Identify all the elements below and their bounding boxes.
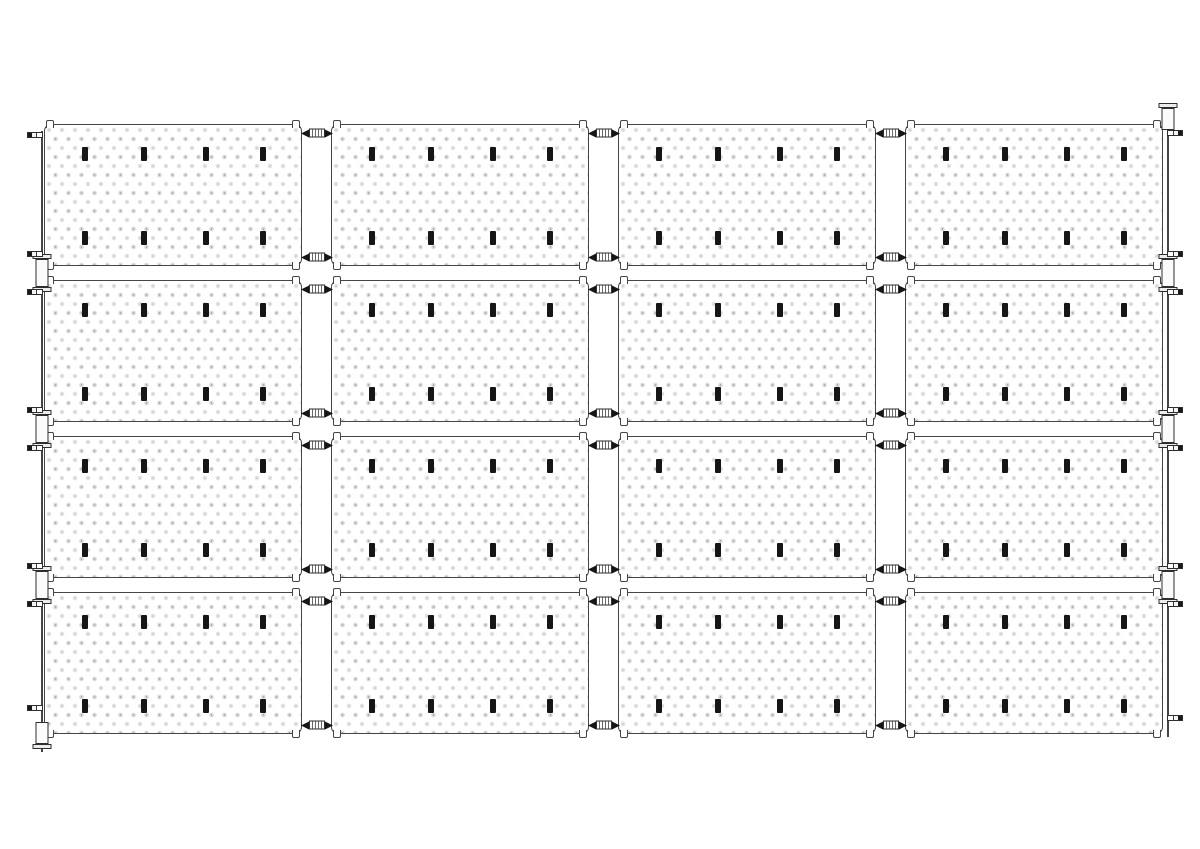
mounting-mark: [141, 615, 147, 629]
panel-r4-c1: [44, 592, 302, 734]
mounting-mark: [943, 303, 949, 317]
mounting-mark: [141, 303, 147, 317]
mounting-mark: [547, 387, 553, 401]
clamp-body: [596, 129, 612, 138]
mounting-mark: [1064, 387, 1070, 401]
panel-clamp-connector: [301, 285, 333, 294]
clamp-arrow-left-icon: [588, 565, 596, 573]
mounting-mark: [547, 231, 553, 245]
rail-clamp-bracket-left: [33, 722, 52, 749]
corner-hook-br: [866, 262, 874, 270]
mounting-mark: [547, 543, 553, 557]
mounting-mark: [369, 543, 375, 557]
corner-hook-tr: [866, 432, 874, 440]
panel-r2-c4: [905, 280, 1163, 422]
mounting-mark: [490, 387, 496, 401]
clamp-body: [309, 409, 325, 418]
mounting-mark: [547, 303, 553, 317]
corner-hook-tr: [579, 120, 587, 128]
corner-hook-tl: [907, 588, 915, 596]
bracket-cap-bottom: [33, 744, 52, 749]
clamp-body: [309, 129, 325, 138]
clamp-arrow-left-icon: [301, 409, 309, 417]
mounting-mark: [1064, 615, 1070, 629]
mounting-mark: [943, 147, 949, 161]
bolt-fastener-left: [27, 601, 43, 607]
clamp-arrow-right-icon: [899, 565, 907, 573]
mounting-mark: [656, 543, 662, 557]
mounting-mark: [1121, 231, 1127, 245]
clamp-body: [309, 441, 325, 450]
mounting-mark: [1121, 387, 1127, 401]
corner-hook-br: [579, 418, 587, 426]
clamp-arrow-left-icon: [875, 597, 883, 605]
panel-clamp-connector: [301, 441, 333, 450]
mounting-mark: [547, 459, 553, 473]
clamp-arrow-right-icon: [325, 565, 333, 573]
panel-r1-c4: [905, 124, 1163, 266]
clamp-body: [883, 565, 899, 574]
panel-r4-c4: [905, 592, 1163, 734]
clamp-arrow-left-icon: [301, 285, 309, 293]
corner-hook-tl: [620, 588, 628, 596]
corner-hook-tl: [333, 120, 341, 128]
panel-clamp-connector: [301, 565, 333, 574]
clamp-arrow-left-icon: [875, 565, 883, 573]
mounting-mark: [369, 387, 375, 401]
mounting-mark: [777, 459, 783, 473]
bracket-body: [1162, 108, 1175, 130]
clamp-arrow-right-icon: [899, 129, 907, 137]
mounting-mark: [656, 147, 662, 161]
mounting-mark: [428, 147, 434, 161]
mounting-mark: [656, 615, 662, 629]
mounting-mark: [1064, 543, 1070, 557]
mounting-mark: [834, 543, 840, 557]
panel-r4-c2: [331, 592, 589, 734]
bolt-fastener-right: [1167, 715, 1183, 721]
corner-hook-bl: [333, 418, 341, 426]
clamp-body: [883, 129, 899, 138]
clamp-arrow-left-icon: [875, 253, 883, 261]
clamp-arrow-right-icon: [899, 253, 907, 261]
clamp-body: [883, 597, 899, 606]
panel-r3-c4: [905, 436, 1163, 578]
bracket-body: [1162, 571, 1175, 599]
mounting-mark: [490, 303, 496, 317]
corner-hook-tr: [292, 120, 300, 128]
panel-r1-c3: [618, 124, 876, 266]
bracket-body: [36, 722, 49, 744]
panel-clamp-connector: [875, 597, 907, 606]
bolt-fastener-right: [1167, 407, 1183, 413]
mounting-mark: [1002, 231, 1008, 245]
mounting-mark: [260, 231, 266, 245]
clamp-arrow-left-icon: [875, 285, 883, 293]
clamp-body: [309, 565, 325, 574]
bolt-fastener-right: [1167, 251, 1183, 257]
mounting-mark: [1002, 699, 1008, 713]
clamp-arrow-right-icon: [325, 441, 333, 449]
mounting-mark: [369, 147, 375, 161]
mounting-mark: [490, 231, 496, 245]
mounting-mark: [369, 459, 375, 473]
clamp-body: [883, 441, 899, 450]
corner-hook-tl: [333, 432, 341, 440]
mounting-mark: [834, 387, 840, 401]
clamp-arrow-left-icon: [301, 441, 309, 449]
clamp-arrow-left-icon: [875, 441, 883, 449]
mounting-mark: [715, 387, 721, 401]
mounting-mark: [834, 615, 840, 629]
mounting-mark: [82, 543, 88, 557]
clamp-body: [309, 721, 325, 730]
mounting-mark: [82, 615, 88, 629]
panel-clamp-connector: [875, 441, 907, 450]
corner-hook-bl: [907, 574, 915, 582]
bolt-fastener-right: [1167, 130, 1183, 136]
mounting-mark: [1064, 699, 1070, 713]
clamp-arrow-left-icon: [875, 409, 883, 417]
mounting-mark: [715, 699, 721, 713]
panel-r2-c2: [331, 280, 589, 422]
mounting-mark: [715, 147, 721, 161]
panel-r3-c2: [331, 436, 589, 578]
mounting-mark: [715, 615, 721, 629]
mounting-mark: [943, 231, 949, 245]
mounting-mark: [547, 699, 553, 713]
bracket-body: [1162, 415, 1175, 443]
panel-r2-c1: [44, 280, 302, 422]
mounting-mark: [82, 303, 88, 317]
mounting-mark: [82, 147, 88, 161]
rail-clamp-bracket-left: [33, 566, 52, 604]
corner-hook-tr: [292, 588, 300, 596]
clamp-body: [309, 285, 325, 294]
bolt-fastener-left: [27, 132, 43, 138]
panel-r1-c2: [331, 124, 589, 266]
mounting-mark: [656, 303, 662, 317]
clamp-body: [596, 721, 612, 730]
corner-hook-br: [866, 574, 874, 582]
corner-hook-br: [292, 418, 300, 426]
mounting-mark: [834, 459, 840, 473]
panel-r3-c1: [44, 436, 302, 578]
clamp-body: [309, 253, 325, 262]
panel-clamp-connector: [875, 409, 907, 418]
mounting-mark: [490, 615, 496, 629]
panel-clamp-connector: [875, 129, 907, 138]
corner-hook-tr: [866, 120, 874, 128]
clamp-arrow-right-icon: [612, 129, 620, 137]
rail-clamp-bracket-left: [33, 254, 52, 292]
panel-r1-c1: [44, 124, 302, 266]
panel-clamp-connector: [875, 565, 907, 574]
mounting-mark: [369, 231, 375, 245]
corner-hook-bl: [620, 262, 628, 270]
mounting-mark: [141, 231, 147, 245]
clamp-arrow-right-icon: [899, 441, 907, 449]
clamp-arrow-right-icon: [325, 721, 333, 729]
clamp-arrow-left-icon: [588, 409, 596, 417]
panel-clamp-connector: [588, 721, 620, 730]
mounting-mark: [260, 615, 266, 629]
panel-clamp-connector: [588, 129, 620, 138]
mounting-mark: [82, 699, 88, 713]
mounting-mark: [1002, 387, 1008, 401]
clamp-arrow-left-icon: [588, 597, 596, 605]
corner-hook-br: [579, 574, 587, 582]
corner-hook-tl: [333, 588, 341, 596]
clamp-body: [883, 409, 899, 418]
mounting-mark: [141, 147, 147, 161]
clamp-arrow-left-icon: [301, 253, 309, 261]
clamp-arrow-left-icon: [875, 129, 883, 137]
mounting-mark: [834, 699, 840, 713]
mounting-mark: [1064, 459, 1070, 473]
panel-clamp-connector: [875, 253, 907, 262]
clamp-arrow-left-icon: [588, 441, 596, 449]
mounting-mark: [141, 699, 147, 713]
clamp-arrow-right-icon: [899, 285, 907, 293]
mounting-mark: [834, 147, 840, 161]
panel-r2-c3: [618, 280, 876, 422]
mounting-mark: [777, 387, 783, 401]
bolt-fastener-left: [27, 563, 43, 569]
corner-hook-bl: [620, 418, 628, 426]
mounting-mark: [656, 459, 662, 473]
bolt-fastener-right: [1167, 563, 1183, 569]
mounting-mark: [1121, 615, 1127, 629]
corner-hook-tl: [907, 120, 915, 128]
mounting-mark: [777, 147, 783, 161]
corner-hook-br: [292, 262, 300, 270]
corner-hook-br: [292, 730, 300, 738]
rail-clamp-bracket-right: [1159, 103, 1178, 130]
mounting-mark: [260, 387, 266, 401]
clamp-arrow-right-icon: [612, 441, 620, 449]
mounting-mark: [1121, 699, 1127, 713]
corner-hook-br: [292, 574, 300, 582]
corner-hook-bl: [333, 730, 341, 738]
corner-hook-br: [579, 262, 587, 270]
corner-hook-tr: [579, 276, 587, 284]
clamp-arrow-right-icon: [899, 409, 907, 417]
bolt-fastener-right: [1167, 445, 1183, 451]
mounting-mark: [1121, 459, 1127, 473]
bolt-fastener-left: [27, 251, 43, 257]
mounting-mark: [428, 387, 434, 401]
mounting-mark: [943, 699, 949, 713]
bracket-body: [1162, 259, 1175, 287]
mounting-mark: [260, 459, 266, 473]
mounting-mark: [203, 147, 209, 161]
panel-clamp-connector: [588, 253, 620, 262]
corner-hook-br: [866, 418, 874, 426]
mounting-mark: [943, 615, 949, 629]
bracket-body: [36, 571, 49, 599]
rail-clamp-bracket-left: [33, 410, 52, 448]
clamp-body: [596, 409, 612, 418]
mounting-mark: [656, 387, 662, 401]
bracket-body: [36, 415, 49, 443]
bolt-fastener-left: [27, 445, 43, 451]
clamp-arrow-right-icon: [325, 597, 333, 605]
clamp-arrow-right-icon: [325, 253, 333, 261]
mounting-mark: [141, 387, 147, 401]
clamp-arrow-left-icon: [875, 721, 883, 729]
mounting-mark: [1064, 147, 1070, 161]
mounting-mark: [490, 147, 496, 161]
clamp-arrow-right-icon: [612, 597, 620, 605]
panel-r3-c3: [618, 436, 876, 578]
mounting-mark: [490, 459, 496, 473]
mounting-mark: [547, 147, 553, 161]
mounting-mark: [369, 303, 375, 317]
bolt-fastener-right: [1167, 601, 1183, 607]
corner-hook-bl: [907, 262, 915, 270]
mounting-mark: [490, 543, 496, 557]
corner-hook-bl: [333, 574, 341, 582]
mounting-mark: [1002, 147, 1008, 161]
clamp-body: [596, 597, 612, 606]
mounting-mark: [1002, 615, 1008, 629]
clamp-body: [309, 597, 325, 606]
mounting-mark: [82, 231, 88, 245]
mounting-mark: [82, 387, 88, 401]
panel-clamp-connector: [588, 565, 620, 574]
corner-hook-tl: [620, 120, 628, 128]
corner-hook-bl: [620, 574, 628, 582]
mounting-mark: [428, 303, 434, 317]
rail-clamp-bracket-right: [1159, 410, 1178, 448]
mounting-mark: [777, 699, 783, 713]
corner-hook-bl: [907, 730, 915, 738]
mounting-mark: [428, 699, 434, 713]
clamp-body: [596, 253, 612, 262]
corner-hook-tl: [907, 432, 915, 440]
mounting-mark: [260, 543, 266, 557]
mounting-mark: [1002, 543, 1008, 557]
clamp-arrow-right-icon: [612, 721, 620, 729]
clamp-body: [883, 721, 899, 730]
mounting-mark: [203, 615, 209, 629]
rail-clamp-bracket-right: [1159, 254, 1178, 292]
clamp-body: [596, 441, 612, 450]
mounting-mark: [490, 699, 496, 713]
mounting-mark: [260, 699, 266, 713]
mounting-mark: [715, 231, 721, 245]
bolt-fastener-right: [1167, 289, 1183, 295]
corner-hook-tr: [292, 276, 300, 284]
panel-clamp-connector: [301, 597, 333, 606]
mounting-mark: [1121, 543, 1127, 557]
clamp-arrow-left-icon: [301, 597, 309, 605]
mounting-mark: [715, 303, 721, 317]
panel-clamp-connector: [588, 285, 620, 294]
mounting-mark: [203, 543, 209, 557]
clamp-arrow-right-icon: [325, 285, 333, 293]
mounting-mark: [141, 543, 147, 557]
clamp-arrow-right-icon: [325, 129, 333, 137]
mounting-mark: [82, 459, 88, 473]
corner-hook-tl: [620, 432, 628, 440]
mounting-mark: [203, 231, 209, 245]
corner-hook-br: [579, 730, 587, 738]
clamp-arrow-left-icon: [588, 253, 596, 261]
mounting-mark: [1121, 303, 1127, 317]
mounting-mark: [715, 543, 721, 557]
clamp-arrow-left-icon: [301, 129, 309, 137]
clamp-arrow-left-icon: [588, 129, 596, 137]
clamp-arrow-right-icon: [612, 285, 620, 293]
mounting-mark: [428, 231, 434, 245]
panel-clamp-connector: [301, 409, 333, 418]
clamp-arrow-right-icon: [899, 721, 907, 729]
mounting-mark: [943, 543, 949, 557]
panel-clamp-connector: [301, 721, 333, 730]
mounting-mark: [1064, 303, 1070, 317]
panel-r4-c3: [618, 592, 876, 734]
panel-clamp-connector: [875, 285, 907, 294]
mounting-mark: [1064, 231, 1070, 245]
mounting-mark: [428, 543, 434, 557]
clamp-arrow-right-icon: [612, 409, 620, 417]
clamp-body: [596, 285, 612, 294]
bracket-body: [36, 259, 49, 287]
corner-hook-tr: [866, 276, 874, 284]
mounting-mark: [1002, 303, 1008, 317]
mounting-mark: [943, 387, 949, 401]
corner-hook-tr: [579, 588, 587, 596]
corner-hook-tr: [866, 588, 874, 596]
panel-clamp-connector: [588, 597, 620, 606]
mounting-mark: [777, 615, 783, 629]
mounting-mark: [203, 387, 209, 401]
mounting-mark: [260, 303, 266, 317]
clamp-body: [883, 285, 899, 294]
corner-hook-tl: [620, 276, 628, 284]
mounting-mark: [715, 459, 721, 473]
panel-array-drawing: [0, 0, 1200, 849]
mounting-mark: [777, 543, 783, 557]
bolt-fastener-left: [27, 289, 43, 295]
panel-clamp-connector: [301, 253, 333, 262]
mounting-mark: [369, 699, 375, 713]
mounting-mark: [834, 231, 840, 245]
panel-clamp-connector: [875, 721, 907, 730]
corner-hook-tl: [907, 276, 915, 284]
corner-hook-bl: [907, 418, 915, 426]
rail-clamp-bracket-right: [1159, 566, 1178, 604]
mounting-mark: [834, 303, 840, 317]
corner-hook-bl: [333, 262, 341, 270]
mounting-mark: [203, 699, 209, 713]
clamp-arrow-right-icon: [612, 253, 620, 261]
mounting-mark: [369, 615, 375, 629]
clamp-arrow-left-icon: [588, 285, 596, 293]
mounting-mark: [656, 699, 662, 713]
corner-hook-tl: [46, 120, 54, 128]
corner-hook-tl: [333, 276, 341, 284]
mounting-mark: [943, 459, 949, 473]
mounting-mark: [260, 147, 266, 161]
clamp-arrow-left-icon: [301, 721, 309, 729]
clamp-arrow-right-icon: [325, 409, 333, 417]
mounting-mark: [1121, 147, 1127, 161]
corner-hook-tr: [579, 432, 587, 440]
mounting-mark: [428, 459, 434, 473]
